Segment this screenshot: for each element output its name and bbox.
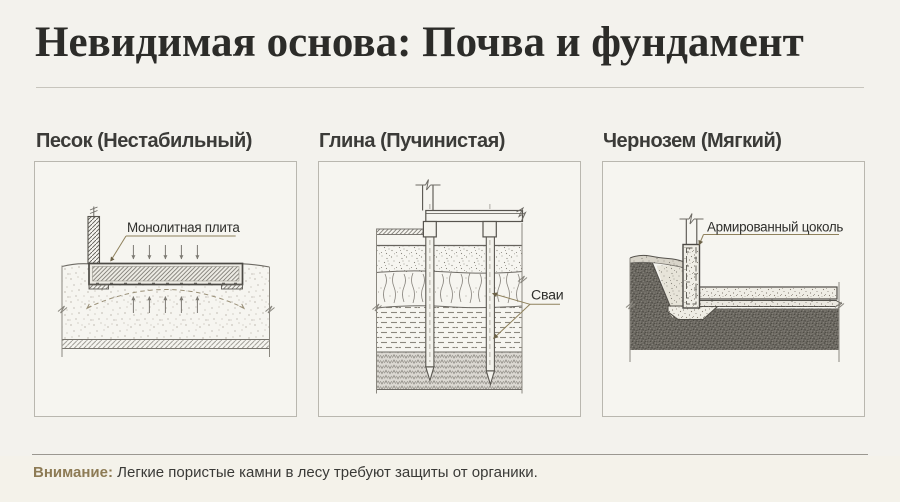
svg-text:Монолитная плита: Монолитная плита [127, 220, 240, 235]
svg-text:Сваи: Сваи [531, 288, 563, 304]
svg-text:Армированный цоколь: Армированный цоколь [707, 220, 843, 235]
